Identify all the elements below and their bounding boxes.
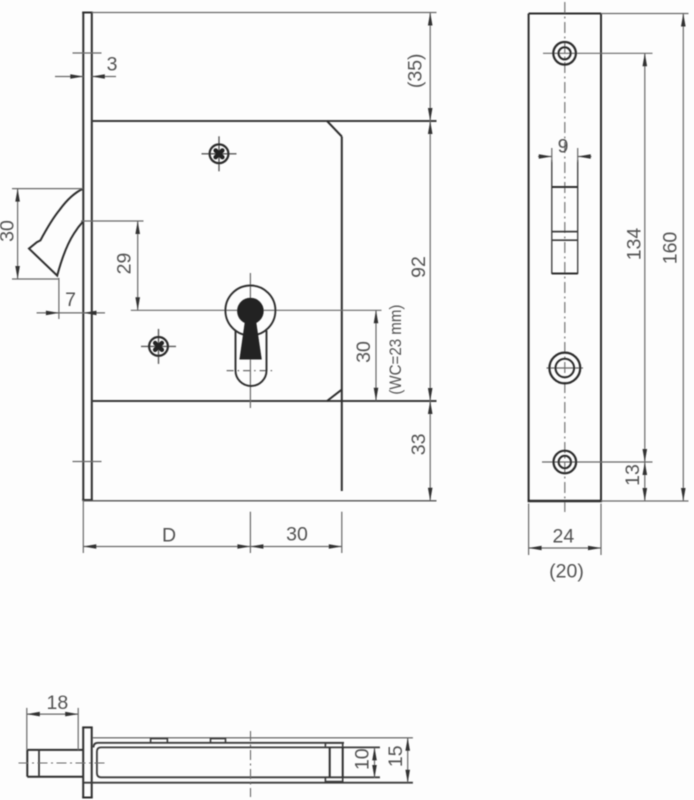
svg-text:(20): (20)	[549, 561, 584, 583]
svg-text:15: 15	[385, 745, 407, 767]
svg-text:134: 134	[623, 228, 645, 261]
svg-text:30: 30	[353, 341, 375, 363]
svg-text:29: 29	[114, 253, 136, 275]
svg-text:30: 30	[286, 524, 308, 546]
svg-text:(35): (35)	[405, 53, 427, 88]
svg-text:10: 10	[352, 748, 374, 770]
svg-text:13: 13	[622, 464, 644, 486]
svg-text:33: 33	[408, 434, 430, 456]
svg-text:92: 92	[408, 256, 430, 278]
svg-text:D: D	[162, 525, 176, 547]
svg-text:160: 160	[660, 232, 682, 265]
svg-text:18: 18	[47, 692, 69, 714]
svg-text:24: 24	[553, 526, 575, 548]
svg-text:9: 9	[558, 136, 569, 158]
svg-text:(WC=23 mm): (WC=23 mm)	[386, 305, 405, 395]
svg-text:7: 7	[65, 289, 76, 311]
svg-text:30: 30	[0, 220, 19, 242]
svg-text:3: 3	[107, 54, 118, 76]
